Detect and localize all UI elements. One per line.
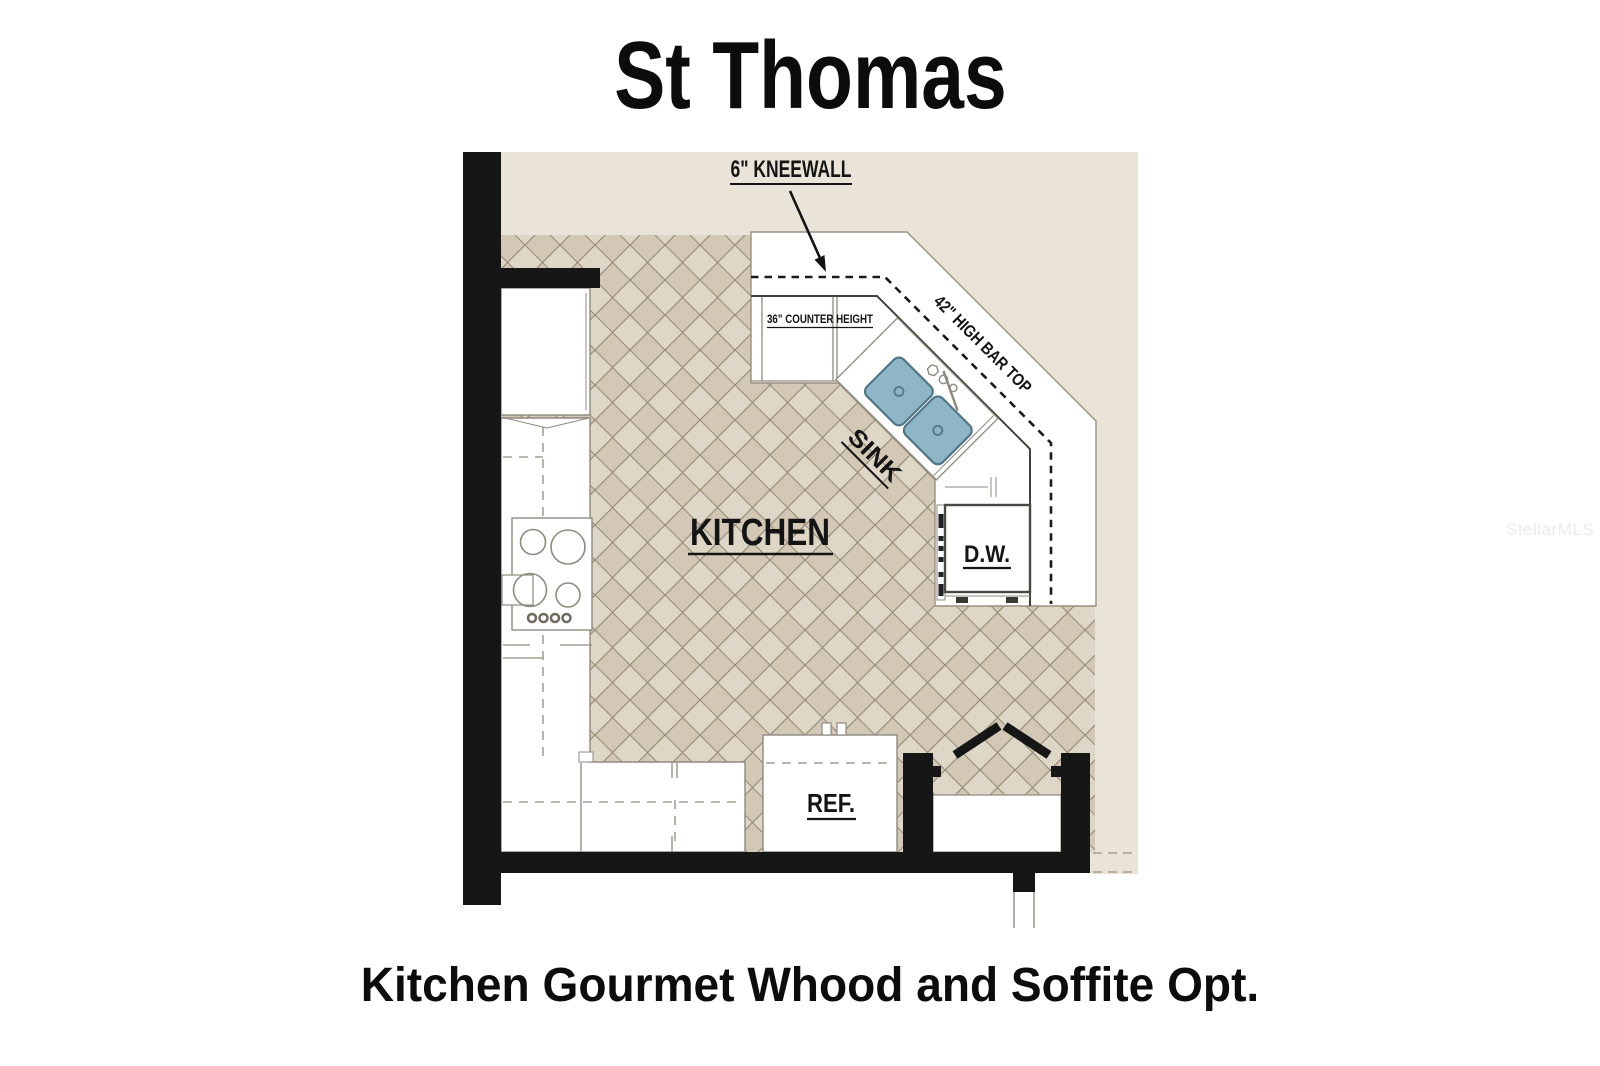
dishwasher-foot-right <box>1006 597 1018 603</box>
pantry-jamb-left <box>933 766 941 777</box>
wall-bottom-stub <box>1013 873 1035 892</box>
page-caption: Kitchen Gourmet Whood and Soffite Opt. <box>0 962 1600 1010</box>
cabinet-corner-step <box>579 752 593 762</box>
kitchen-label: KITCHEN <box>690 512 830 554</box>
dishwasher-foot-left <box>956 597 968 603</box>
wall-bottom <box>463 852 1090 873</box>
pantry-wall-right <box>1061 753 1090 854</box>
pantry-wall-left <box>903 753 933 854</box>
dishwasher-label: D.W. <box>964 541 1010 568</box>
refrigerator-tab-right <box>837 723 846 735</box>
refrigerator-tab-left <box>822 723 831 735</box>
floorplan-page: St Thomas <box>0 0 1600 1066</box>
refrigerator-label: REF. <box>807 788 855 818</box>
kneewall-label: 6" KNEEWALL <box>731 156 852 183</box>
watermark: StellarMLS <box>1506 520 1594 540</box>
pantry-interior <box>933 795 1061 852</box>
pantry-jamb-right <box>1051 766 1061 777</box>
floorplan-drawing: 6" KNEEWALL 36" COUNTER HEIGHT 42" HIGH … <box>0 0 1600 1066</box>
wall-top-stub <box>501 268 600 288</box>
plan-background-corner <box>1090 845 1138 874</box>
door-jamb-lines <box>1014 892 1034 928</box>
page-caption-text: Kitchen Gourmet Whood and Soffite Opt. <box>361 962 1260 1010</box>
tall-cabinet <box>501 288 590 428</box>
wall-left <box>463 152 501 905</box>
counter-height-label: 36" COUNTER HEIGHT <box>767 312 874 326</box>
tall-cabinet-body <box>501 288 590 415</box>
cooktop <box>502 518 592 630</box>
